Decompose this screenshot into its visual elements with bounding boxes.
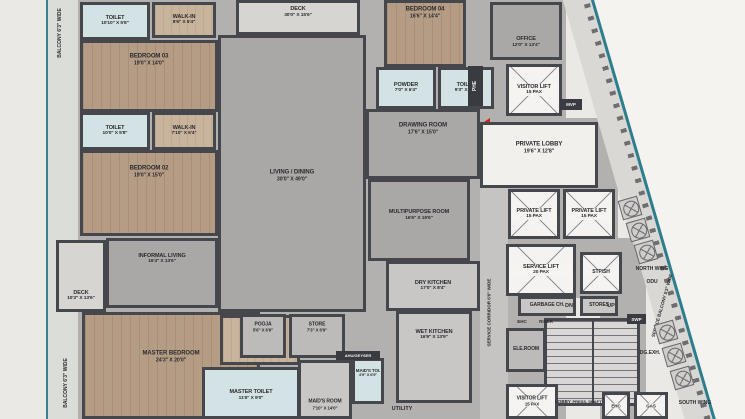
label-up: UP (602, 303, 620, 309)
room-label: PRIVATE LIFT15 PAX (511, 208, 557, 220)
room-toilet: TOILET10'10" X 5'8" (80, 2, 150, 40)
room-visitor-lift: VISITOR LIFT15 PAX (506, 384, 558, 419)
room-label: DECK30'0" X 15'6" (239, 6, 357, 18)
room-label: TOILET10'0" X 5'8" (83, 125, 147, 137)
room-label: MASTER TOILET11'6" X 9'0" (205, 389, 297, 401)
chip-phe: PHE (468, 66, 483, 106)
room-label: TOILET9'3" X 6'4" (441, 82, 491, 94)
room-living-dining: LIVING / DINING30'0" X 49'0" (218, 35, 366, 312)
room-label: GAS (637, 403, 665, 408)
room-label: STORE7'3" X 6'9" (292, 322, 342, 333)
room-walk-in: WALK-IN8'6" X 6'4" (152, 2, 216, 38)
room-deck: DECK10'3" X 13'6" (56, 240, 106, 312)
room-bedroom-02: BEDROOM 0219'0" X 15'0" (80, 150, 218, 236)
room-walk-in: WALK-IN7'10" X 6'4" (152, 112, 216, 150)
room-maid-s-room: MAID'S ROOM7'10" X 14'0" (298, 360, 352, 419)
room-label: WET KITCHEN16'9" X 13'9" (399, 329, 469, 341)
room-label: EHC (605, 403, 627, 408)
room-label: POWDER7'0" X 6'4" (379, 82, 433, 94)
room-powder: POWDER7'0" X 6'4" (376, 67, 436, 109)
room-toilet: TOILET10'0" X 5'8" (80, 112, 150, 150)
room-label: INFORMAL LIVING16'4" X 13'6" (109, 253, 215, 265)
label-dn: DN (560, 303, 578, 309)
label-press-shaft: PRESS. SHAFT (570, 399, 604, 404)
label-service-corridor-6-6-wide: SERVICE CORRIDOR 6'6" WIDE (487, 268, 492, 358)
room-label: POOJA5'6" X 6'9" (243, 322, 283, 333)
room-label: DRY KITCHEN17'0" X 8'4" (389, 280, 477, 292)
room-label: DRAWING ROOM17'6" X 15'0" (369, 122, 477, 135)
room-bedroom-04: BEDROOM 0416'6" X 14'4" (384, 0, 466, 67)
room-bedroom-03: BEDROOM 0319'0" X 14'0" (80, 40, 218, 112)
room-multipurpose-room: MULTIPURPOSE ROOM16'6" X 19'6" (368, 179, 470, 261)
room-master-toilet: MASTER TOILET11'6" X 9'0" (202, 367, 300, 419)
room-label: STP/SH (583, 270, 619, 276)
room-ehc: EHC (602, 392, 630, 419)
room-label: MAID'S TOI.4'9" X 6'9" (355, 368, 381, 378)
room-private-lift: PRIVATE LIFT15 PAX (508, 189, 560, 239)
room-dry-kitchen: DRY KITCHEN17'0" X 8'4" (386, 261, 480, 311)
room-informal-living: INFORMAL LIVING16'4" X 13'6" (106, 238, 218, 308)
room-wet-kitchen: WET KITCHEN16'9" X 13'9" (396, 311, 472, 403)
label-ehc: EHC (514, 319, 530, 324)
room-maid-s-toi: MAID'S TOI.4'9" X 6'9" (352, 358, 384, 404)
room-service-lift: SERVICE LIFT20 PAX (506, 244, 576, 296)
label-balcony-6-3-wide: BALCONY 6'3" WIDE (63, 348, 69, 418)
label-odu: ODU (642, 279, 662, 285)
room-toilet: TOILET9'3" X 6'4" (438, 67, 494, 109)
room-deck: DECK30'0" X 15'6" (236, 0, 360, 35)
room-label: VISITOR LIFT15 PAX (509, 396, 555, 407)
room-pooja: POOJA5'6" X 6'9" (240, 314, 286, 358)
room-office: OFFICE12'0" X 13'4" (490, 2, 562, 60)
chip-mvp: MVP (560, 99, 582, 110)
room-label: PRIVATE LOBBY19'6" X 12'8" (483, 141, 595, 154)
room-private-lobby: PRIVATE LOBBY19'6" X 12'8" (480, 122, 598, 188)
room-label: BEDROOM 0219'0" X 15'0" (83, 166, 215, 179)
floor-plan: TOILET10'10" X 5'8"WALK-IN8'6" X 6'4"BED… (0, 0, 745, 419)
label-north-wing: NORTH WING (631, 266, 673, 272)
chip-swp: SWP (627, 314, 646, 324)
room-stp-sh: STP/SH (580, 252, 622, 294)
chip-ahu-geyser: AHU/GEYSER (336, 351, 380, 360)
room-label: BEDROOM 0319'0" X 14'0" (83, 54, 215, 67)
room-label: MULTIPURPOSE ROOM16'6" X 19'6" (371, 210, 467, 222)
label-south-wing: SOUTH WING (672, 400, 718, 406)
room-label: WALK-IN8'6" X 6'4" (155, 14, 213, 26)
room-label: PRIVATE LIFT15 PAX (566, 208, 612, 220)
label-riser: RISER (534, 319, 558, 324)
room-drawing-room: DRAWING ROOM17'6" X 15'0" (366, 109, 480, 179)
room-label: TOILET10'10" X 5'8" (83, 15, 147, 27)
room-label: LIVING / DINING30'0" X 49'0" (221, 170, 363, 183)
room-label: BEDROOM 0416'6" X 14'4" (387, 6, 463, 19)
room-ele-room: ELE.ROOM (506, 328, 546, 372)
label-utility: UTILITY (382, 406, 422, 412)
room-label: WALK-IN7'10" X 6'4" (155, 125, 213, 137)
room-label: MAID'S ROOM7'10" X 14'0" (301, 400, 349, 411)
room-gas: GAS (634, 392, 668, 419)
room-label: ELE.ROOM (509, 347, 543, 353)
room-label: DECK10'3" X 13'6" (59, 290, 103, 302)
room-private-lift: PRIVATE LIFT15 PAX (563, 189, 615, 239)
service-corridor (480, 188, 508, 419)
label-balcony-6-3-wide: BALCONY 6'3" WIDE (57, 0, 63, 68)
room-label: OFFICE12'0" X 13'4" (493, 37, 559, 49)
label-dg-exh: DG.EXH. (634, 350, 666, 356)
room-visitor-lift: VISITOR LIFT15 PAX (506, 64, 562, 116)
room-label: VISITOR LIFT15 PAX (509, 84, 559, 96)
stair-divider (592, 321, 594, 403)
room-label: SERVICE LIFT20 PAX (509, 264, 573, 276)
